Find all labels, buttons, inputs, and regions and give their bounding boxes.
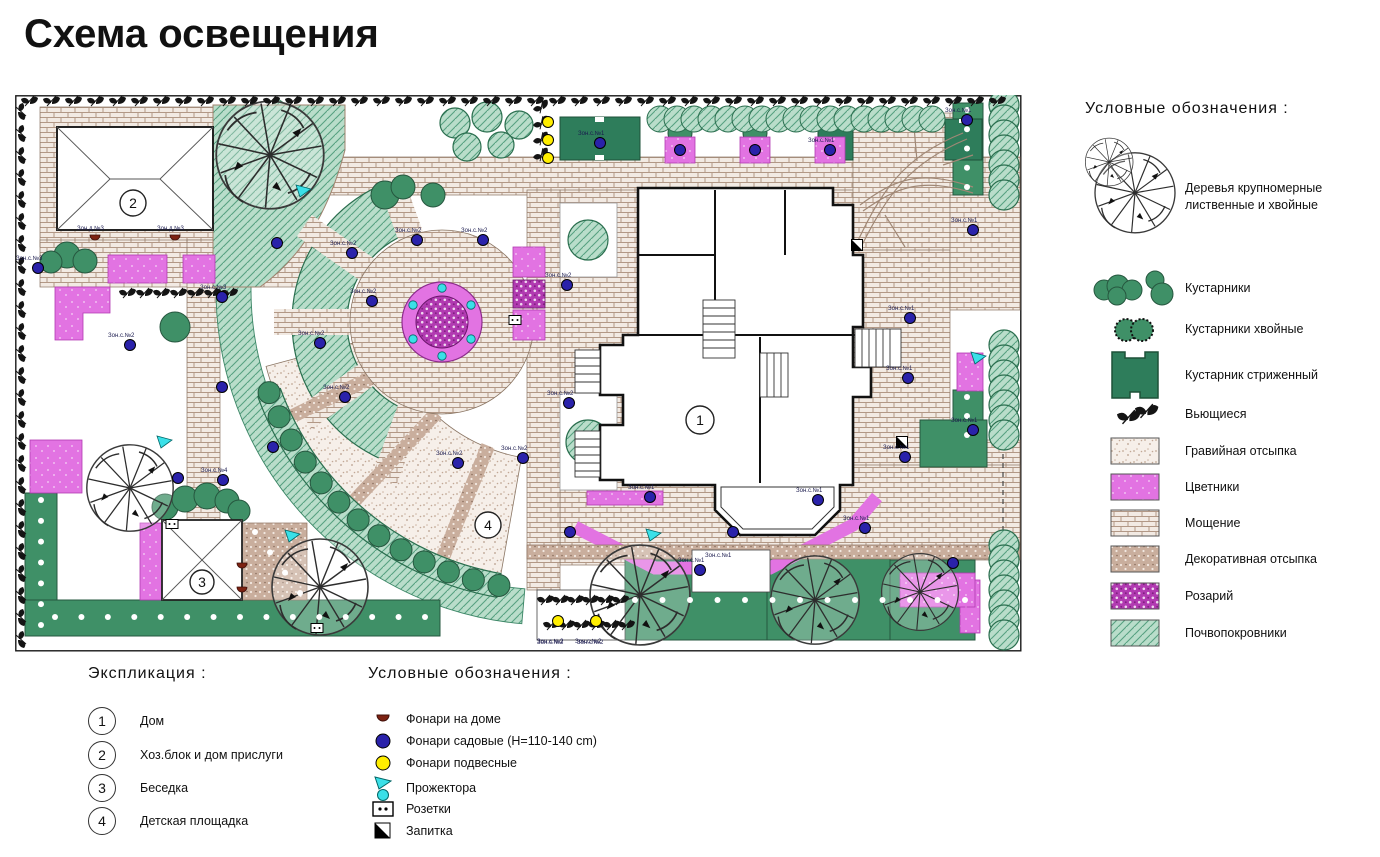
legend-lights-item: Запитка [368, 821, 453, 841]
garden-lamp [595, 138, 606, 149]
floodlight-icon [368, 775, 398, 801]
zone-label: Зон.с.№2 [501, 445, 528, 452]
garden-lamp [33, 263, 44, 274]
garden-lamp [564, 398, 575, 409]
legend-item-shrubs: Кустарники [1085, 268, 1250, 308]
tree-icon [1085, 122, 1185, 272]
zone-label: Зон.с.№2 [461, 227, 488, 234]
power-feed [852, 240, 863, 251]
legend-lights-heading: Условные обозначения : [368, 665, 668, 683]
explication-panel: Экспликация : 1 Дом 2 Хоз.блок и дом при… [88, 665, 348, 683]
zone-label: Зон.с.№4 [201, 467, 228, 474]
legend-lights-label: Фонари подвесные [406, 756, 517, 770]
garden-lamp-icon [368, 733, 398, 749]
svg-text:2: 2 [129, 195, 137, 211]
garden-lamp [518, 453, 529, 464]
garden-lamp [562, 280, 573, 291]
socket [509, 316, 521, 325]
tree-symbol [87, 445, 173, 531]
zone-label: Зон.с.№3 [16, 255, 43, 262]
legend-lights-label: Фонари садовые (H=110-140 cm) [406, 734, 597, 748]
floodlight-dot [467, 335, 475, 343]
trimmed-shrub-icon [1085, 350, 1185, 400]
garden-lamp [272, 238, 283, 249]
legend-lights-panel: Условные обозначения : Фонари на доме Фо… [368, 665, 668, 683]
number-badge: 4 [88, 807, 116, 835]
socket-icon [368, 801, 398, 817]
legend-item-conifer-shrubs: Кустарники хвойные [1085, 312, 1303, 346]
zone-label: Зон.с.№1 [843, 515, 870, 522]
site-plan-drawing: Зон.с.№3Зон.с.№3Зон.с.№4Зон.с.№2Зон.с.№2… [15, 95, 1022, 652]
zone-label: Зон.с.№1 [888, 305, 915, 312]
garden-lamp [478, 235, 489, 246]
zone-label: Зон.с.№1 [678, 557, 705, 564]
hanging-lamp [543, 117, 554, 128]
lighting-scheme-page: { "title": "Схема освещения", "colors": … [0, 0, 1380, 857]
zone-label: Зон.с.№2 [298, 330, 325, 337]
svg-text:1: 1 [696, 412, 704, 428]
number-badge: 1 [88, 707, 116, 735]
legend-lights-item: Розетки [368, 799, 451, 819]
rosary-strip [513, 280, 545, 308]
garden-lamp [125, 340, 136, 351]
explication-item: 1 Дом [88, 707, 164, 735]
explication-item: 3 Беседка [88, 774, 188, 802]
hanging-lamp [543, 153, 554, 164]
legend-item-label: Розарий [1185, 588, 1233, 605]
garden-lamp [948, 558, 959, 569]
house-lamp-icon [368, 712, 398, 726]
legend-lights-item: Прожектора [368, 775, 476, 801]
garden-lamp [453, 458, 464, 469]
garden-lamp [695, 565, 706, 576]
building-number-4: 4 [475, 512, 501, 538]
socket [166, 520, 178, 529]
zone-label: Зон.с.№2 [350, 288, 377, 295]
legend-item-flowerbeds: Цветники [1085, 472, 1239, 502]
garden-lamp [268, 442, 279, 453]
legend-item-groundcover: Почвопокровники [1085, 618, 1287, 648]
tree-symbol [590, 545, 690, 645]
paving-swatch [1085, 509, 1185, 537]
legend-plants: Условные обозначения : Деревья крупномер… [1085, 100, 1373, 652]
zone-label: Зон.с.№2 [537, 639, 564, 646]
garden-lamp [565, 527, 576, 538]
legend-lights-item: Фонари садовые (H=110-140 cm) [368, 731, 597, 751]
socket [311, 624, 323, 633]
rose-garden [402, 282, 482, 362]
zone-label: Зон.с.№1 [945, 107, 972, 114]
page-title: Схема освещения [24, 12, 379, 57]
conifer-shrubs-icon [1085, 312, 1185, 346]
explication-item: 2 Хоз.блок и дом прислуги [88, 741, 283, 769]
legend-lights-item: Фонари на доме [368, 709, 501, 729]
building-number-3: 3 [190, 570, 214, 594]
garden-lamp [218, 475, 229, 486]
legend-item-label: Декоративная отсыпка [1185, 551, 1317, 568]
zone-label: Зон.с.№2 [108, 332, 135, 339]
zone-label: Зон.с.№1 [808, 137, 835, 144]
explication-label: Детская площадка [140, 814, 248, 828]
zone-label: Зон.с.№2 [545, 272, 572, 279]
garden-lamp [813, 495, 824, 506]
zone-label: Зон.с.№1 [705, 552, 732, 559]
floodlight-dot [438, 284, 446, 292]
garden-lamp [315, 338, 326, 349]
flowerbed-swatch [1085, 473, 1185, 501]
garden-lamp [217, 382, 228, 393]
legend-item-label: Мощение [1185, 515, 1240, 532]
legend-lights-item: Фонари подвесные [368, 753, 517, 773]
zone-label: Зон.с.№1 [578, 130, 605, 137]
garden-lamp [962, 115, 973, 126]
site-plan: Зон.с.№3Зон.с.№3Зон.с.№4Зон.с.№2Зон.с.№2… [15, 95, 1022, 652]
explication-item: 4 Детская площадка [88, 807, 248, 835]
garden-lamp [905, 313, 916, 324]
gravel-swatch [1085, 437, 1185, 465]
floodlight-dot [467, 301, 475, 309]
garden-lamp [750, 145, 761, 156]
shrubs-icon [1085, 268, 1185, 308]
zone-label: Зон.с.№2 [577, 639, 604, 646]
zone-label: Зон.с.№1 [796, 487, 823, 494]
legend-lights-label: Запитка [406, 824, 453, 838]
zone-label: Зон.с.№1 [628, 484, 655, 491]
garden-lamp [367, 296, 378, 307]
zone-label: Зон.с.№3 [200, 284, 227, 291]
legend-item-label: Кустарники хвойные [1185, 321, 1303, 338]
building-number-2: 2 [120, 190, 146, 216]
garden-lamp [217, 292, 228, 303]
explication-label: Беседка [140, 781, 188, 795]
legend-item-label: Кустарники [1185, 280, 1250, 297]
number-badge: 2 [88, 741, 116, 769]
hanging-lamp [591, 616, 602, 627]
garden-lamp [825, 145, 836, 156]
zone-label: Зон.д.№3 [77, 225, 105, 232]
legend-lights-label: Розетки [406, 802, 451, 816]
garden-lamp [645, 492, 656, 503]
zone-label: Зон.с.№1 [883, 444, 910, 451]
legend-item-trimmed-shrub: Кустарник стриженный [1085, 350, 1318, 400]
zone-label: Зон.с.№1 [951, 417, 978, 424]
decorative-border [527, 545, 1020, 559]
legend-item-trees: Деревья крупномерные лиственные и хвойны… [1085, 122, 1345, 272]
hanging-lamp [543, 135, 554, 146]
legend-plants-heading: Условные обозначения : [1085, 100, 1373, 118]
floodlight-dot [438, 352, 446, 360]
legend-item-gravel: Гравийная отсыпка [1085, 436, 1297, 466]
tree-symbol [216, 101, 324, 209]
zone-label: Зон.с.№2 [547, 390, 574, 397]
garden-lamp [968, 425, 979, 436]
zone-label: Зон.с.№2 [323, 384, 350, 391]
explication-label: Хоз.блок и дом прислуги [140, 748, 283, 762]
tree-symbol [882, 554, 959, 631]
rosary-swatch [1085, 582, 1185, 610]
hanging-lamp [553, 616, 564, 627]
legend-lights-label: Прожектора [406, 781, 476, 795]
garden-lamp [728, 527, 739, 538]
decorative-swatch [1085, 545, 1185, 573]
explication-label: Дом [140, 714, 164, 728]
garden-lamp [900, 452, 911, 463]
power-feed-icon [368, 822, 398, 840]
legend-item-label: Кустарник стриженный [1185, 367, 1318, 384]
zone-label: Зон.с.№1 [886, 365, 913, 372]
legend-item-label: Деревья крупномерные лиственные и хвойны… [1185, 180, 1345, 214]
climbing-icon [1085, 398, 1185, 430]
floodlight-dot [409, 301, 417, 309]
tree-symbol [272, 539, 368, 635]
zone-label: Зон.с.№1 [951, 217, 978, 224]
garden-lamp [675, 145, 686, 156]
hanging-lamp-icon [368, 755, 398, 771]
building-number-1: 1 [686, 406, 714, 434]
legend-item-label: Почвопокровники [1185, 625, 1287, 642]
zone-label: Зон.д.№3 [157, 225, 185, 232]
groundcover-swatch [1085, 619, 1185, 647]
legend-item-paving: Мощение [1085, 508, 1240, 538]
garden-lamp [173, 473, 184, 484]
zone-label: Зон.с.№2 [395, 227, 422, 234]
explication-heading: Экспликация : [88, 665, 348, 683]
garden-lamp [347, 248, 358, 259]
zone-label: Зон.с.№2 [436, 450, 463, 457]
garden-lamp [340, 392, 351, 403]
garden-lamp [903, 373, 914, 384]
legend-item-rosary: Розарий [1085, 581, 1233, 611]
svg-text:3: 3 [198, 574, 206, 590]
legend-item-label: Гравийная отсыпка [1185, 443, 1297, 460]
legend-item-climbing: Вьющиеся [1085, 398, 1246, 430]
legend-item-label: Цветники [1185, 479, 1239, 496]
legend-lights-label: Фонари на доме [406, 712, 501, 726]
legend-item-decorative: Декоративная отсыпка [1085, 544, 1317, 574]
garden-lamp [968, 225, 979, 236]
floodlight-dot [409, 335, 417, 343]
zone-label: Зон.с.№2 [330, 240, 357, 247]
legend-item-label: Вьющиеся [1185, 406, 1246, 423]
svg-text:4: 4 [484, 517, 492, 533]
garden-lamp [860, 523, 871, 534]
garden-lamp [412, 235, 423, 246]
number-badge: 3 [88, 774, 116, 802]
tree-symbol [771, 556, 859, 644]
